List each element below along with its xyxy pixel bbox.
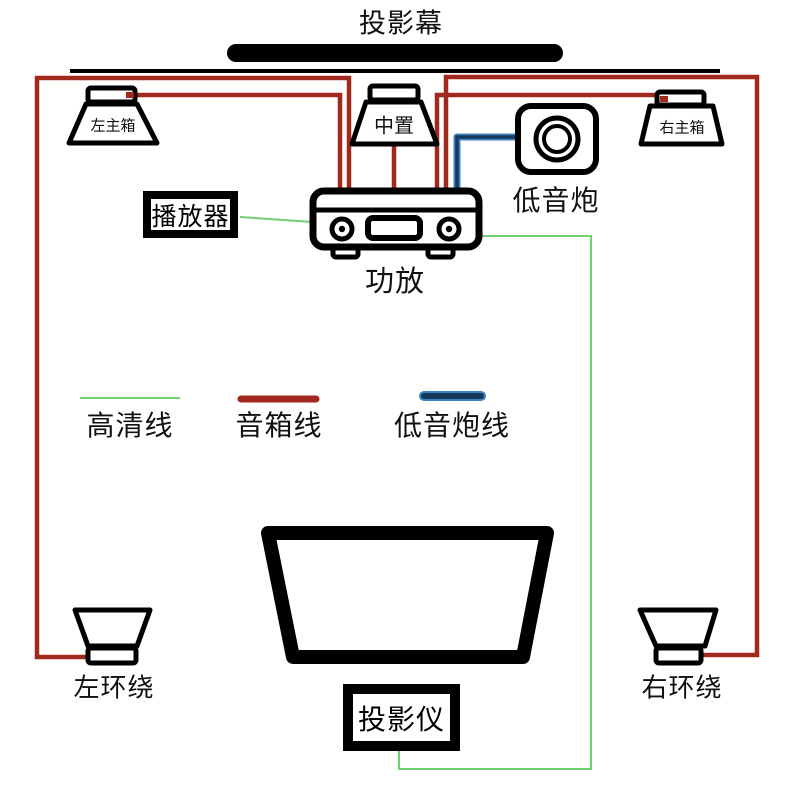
amplifier xyxy=(313,191,479,257)
player-label: 播放器 xyxy=(151,197,229,233)
right-surround-label: 右环绕 xyxy=(641,668,722,705)
legend-subwoofer-label: 低音炮线 xyxy=(394,404,510,444)
legend-hdmi-label: 高清线 xyxy=(86,404,173,444)
wire-player-to-amp xyxy=(240,217,313,222)
amp-display xyxy=(368,218,420,238)
projector-label: 投影仪 xyxy=(358,698,445,738)
player-box: 播放器 xyxy=(143,191,238,238)
left-surround-speaker xyxy=(75,610,150,663)
projector-box: 投影仪 xyxy=(343,684,460,751)
wire-subwoofer xyxy=(457,137,520,196)
screen-label: 投影幕 xyxy=(359,2,443,41)
screen-bar xyxy=(227,44,563,62)
left-main-speaker-label: 左主箱 xyxy=(90,115,135,136)
wire-left-main-speaker xyxy=(132,95,340,196)
wire-subwoofer-halo xyxy=(457,137,520,196)
right-main-speaker-label: 右主箱 xyxy=(659,117,704,138)
left-surround-label: 左环绕 xyxy=(73,668,154,705)
amplifier-label: 功放 xyxy=(365,258,425,300)
center-speaker-label: 中置 xyxy=(374,110,414,139)
subwoofer xyxy=(518,106,596,172)
projector-outline xyxy=(268,533,547,657)
subwoofer-label: 低音炮 xyxy=(512,179,599,219)
legend-speaker-label: 音箱线 xyxy=(235,404,322,444)
home-theater-wiring-diagram: 投影幕 左主箱 中置 右主箱 低音炮 播放器 功放 高清线 音箱线 低音炮线 左… xyxy=(0,0,789,805)
